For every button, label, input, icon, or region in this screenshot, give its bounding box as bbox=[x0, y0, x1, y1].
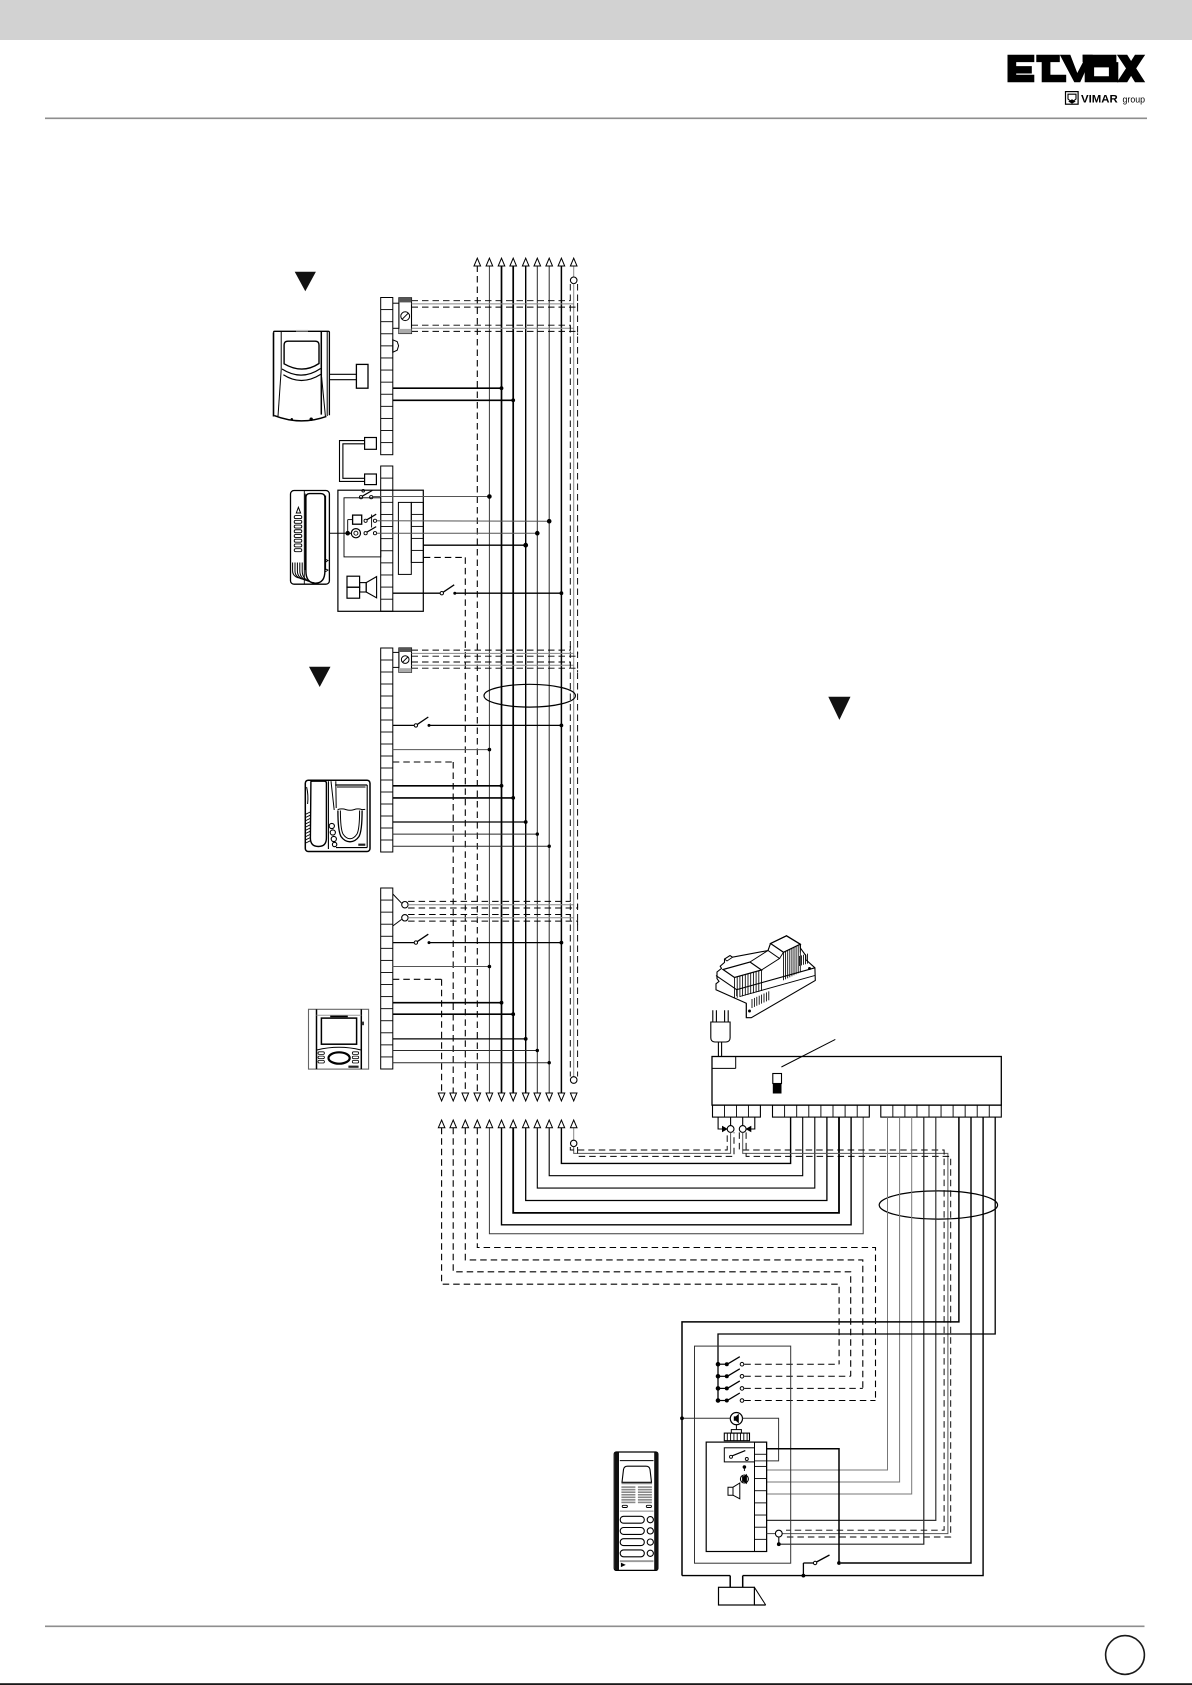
svg-text:VIMAR: VIMAR bbox=[1081, 93, 1118, 105]
svg-text:group: group bbox=[1123, 94, 1146, 104]
